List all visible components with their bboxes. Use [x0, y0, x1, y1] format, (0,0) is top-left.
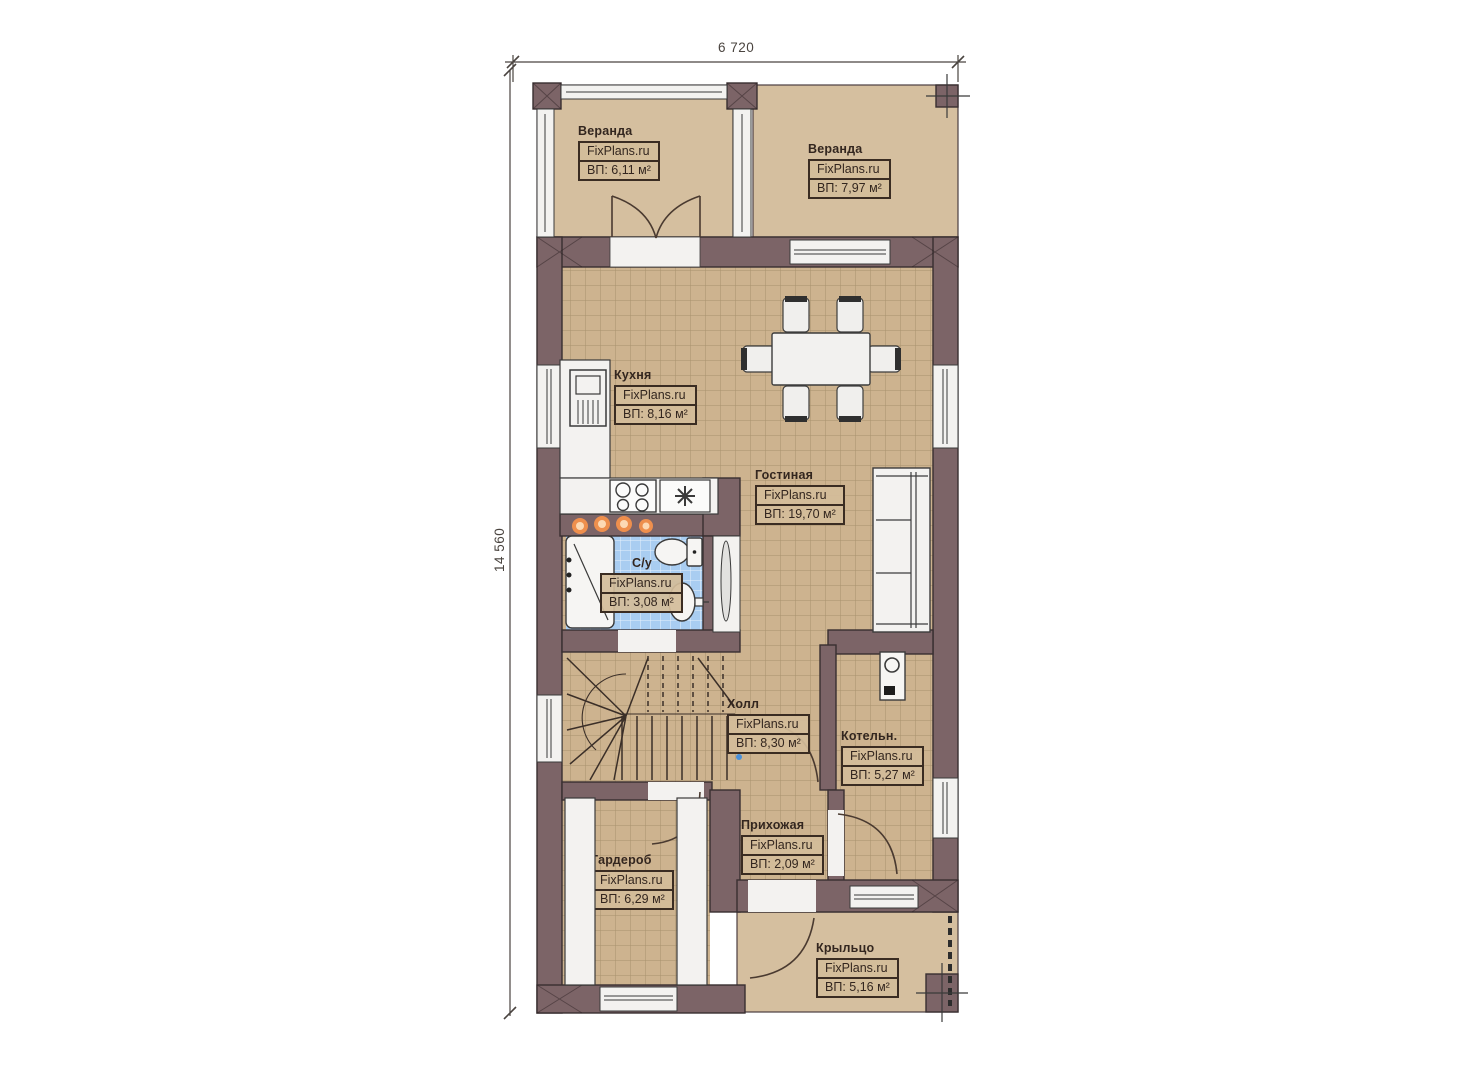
sink-icon [660, 480, 710, 512]
room-name: Веранда [578, 124, 660, 138]
sofa-icon [873, 468, 930, 632]
room-name: С/у [632, 556, 683, 570]
floor-plan-canvas: 6 720 14 560 Веранда FixPlans.ru ВП: 6,1… [0, 0, 1473, 1080]
room-area: ВП: 5,16 м² [818, 979, 897, 996]
stove-icon [610, 480, 656, 512]
room-info-box: FixPlans.ru ВП: 3,08 м² [600, 573, 683, 613]
brand-watermark: FixPlans.ru [602, 575, 681, 594]
room-label-kitchen: Кухня FixPlans.ru ВП: 8,16 м² [614, 368, 697, 425]
floor-plan-drawing [0, 0, 1473, 1080]
room-area: ВП: 19,70 м² [757, 506, 843, 523]
room-area: ВП: 8,30 м² [729, 735, 808, 752]
brand-watermark: FixPlans.ru [757, 487, 843, 506]
room-info-box: FixPlans.ru ВП: 6,11 м² [578, 141, 660, 181]
room-info-box: FixPlans.ru ВП: 19,70 м² [755, 485, 845, 525]
room-area: ВП: 3,08 м² [602, 594, 681, 611]
room-label-porch: Крыльцо FixPlans.ru ВП: 5,16 м² [816, 941, 899, 998]
brand-watermark: FixPlans.ru [843, 748, 922, 767]
fridge-icon [570, 370, 606, 426]
brand-watermark: FixPlans.ru [810, 161, 889, 180]
room-label-wardrobe: Гардероб FixPlans.ru ВП: 6,29 м² [591, 853, 674, 910]
dining-table [772, 333, 870, 385]
dimension-width-label: 6 720 [718, 40, 754, 55]
brand-watermark: FixPlans.ru [818, 960, 897, 979]
room-name: Прихожая [741, 818, 824, 832]
room-label-hall: Холл FixPlans.ru ВП: 8,30 м² [727, 697, 810, 754]
room-name: Кухня [614, 368, 697, 382]
room-info-box: FixPlans.ru ВП: 8,30 м² [727, 714, 810, 754]
boiler-icon [880, 652, 905, 700]
room-info-box: FixPlans.ru ВП: 5,27 м² [841, 746, 924, 786]
room-info-box: FixPlans.ru ВП: 7,97 м² [808, 159, 891, 199]
room-info-box: FixPlans.ru ВП: 2,09 м² [741, 835, 824, 875]
room-area: ВП: 8,16 м² [616, 406, 695, 423]
room-name: Холл [727, 697, 810, 711]
room-area: ВП: 6,11 м² [580, 162, 658, 179]
room-area: ВП: 6,29 м² [593, 891, 672, 908]
room-name: Веранда [808, 142, 891, 156]
brand-watermark: FixPlans.ru [616, 387, 695, 406]
room-info-box: FixPlans.ru ВП: 6,29 м² [591, 870, 674, 910]
room-name: Гардероб [591, 853, 674, 867]
brand-watermark: FixPlans.ru [743, 837, 822, 856]
room-name: Гостиная [755, 468, 845, 482]
room-area: ВП: 7,97 м² [810, 180, 889, 197]
room-label-entry: Прихожая FixPlans.ru ВП: 2,09 м² [741, 818, 824, 875]
dimension-height-label: 14 560 [492, 528, 507, 572]
room-label-veranda-left: Веранда FixPlans.ru ВП: 6,11 м² [578, 124, 660, 181]
room-name: Крыльцо [816, 941, 899, 955]
brand-watermark: FixPlans.ru [580, 143, 658, 162]
room-label-veranda-right: Веранда FixPlans.ru ВП: 7,97 м² [808, 142, 891, 199]
room-info-box: FixPlans.ru ВП: 8,16 м² [614, 385, 697, 425]
room-label-bathroom: С/у FixPlans.ru ВП: 3,08 м² [600, 556, 683, 613]
stair-marker-dot [736, 754, 742, 760]
room-area: ВП: 2,09 м² [743, 856, 822, 873]
room-area: ВП: 5,27 м² [843, 767, 922, 784]
room-name: Котельн. [841, 729, 924, 743]
brand-watermark: FixPlans.ru [593, 872, 672, 891]
brand-watermark: FixPlans.ru [729, 716, 808, 735]
room-label-boiler: Котельн. FixPlans.ru ВП: 5,27 м² [841, 729, 924, 786]
room-label-living: Гостиная FixPlans.ru ВП: 19,70 м² [755, 468, 845, 525]
room-info-box: FixPlans.ru ВП: 5,16 м² [816, 958, 899, 998]
